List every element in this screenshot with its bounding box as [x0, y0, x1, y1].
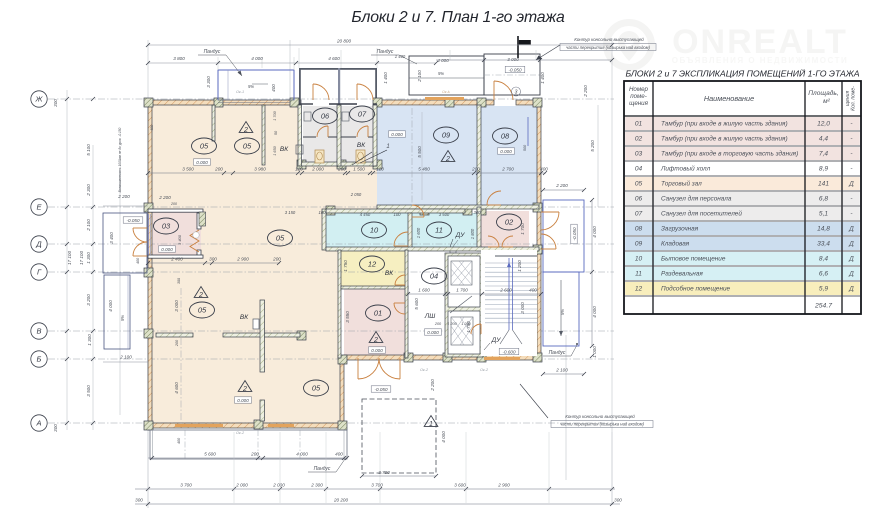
svg-text:Пандус: Пандус [204, 49, 221, 55]
svg-text:4 000: 4 000 [296, 452, 308, 457]
svg-text:2 000: 2 000 [311, 167, 324, 172]
svg-text:09: 09 [442, 131, 451, 140]
svg-text:4 000: 4 000 [441, 431, 446, 443]
svg-text:500: 500 [523, 144, 527, 151]
svg-text:2: 2 [373, 337, 378, 344]
svg-text:Площадь,: Площадь, [808, 89, 839, 97]
svg-text:08: 08 [501, 132, 510, 141]
svg-text:1 650: 1 650 [273, 145, 277, 155]
svg-text:1 000: 1 000 [592, 346, 597, 358]
svg-text:3 400: 3 400 [177, 234, 182, 245]
svg-text:4 600: 4 600 [174, 382, 179, 394]
svg-text:1 400: 1 400 [540, 72, 545, 84]
svg-text:2 200: 2 200 [117, 194, 130, 199]
svg-text:Пандус: Пандус [549, 350, 566, 356]
svg-text:Контур консольно выступающей: Контур консольно выступающей [565, 414, 635, 419]
svg-text:Д: Д [848, 226, 854, 233]
svg-text:3 700: 3 700 [371, 483, 383, 488]
svg-text:02: 02 [635, 136, 643, 143]
svg-text:04: 04 [430, 272, 438, 281]
svg-text:1: 1 [386, 144, 389, 150]
svg-text:0.000: 0.000 [161, 247, 173, 252]
svg-text:5 600: 5 600 [414, 298, 419, 310]
svg-text:Бытовое помещение: Бытовое помещение [661, 256, 726, 263]
svg-text:Номер: Номер [629, 86, 649, 93]
svg-text:01: 01 [374, 309, 382, 318]
svg-text:2 400: 2 400 [170, 257, 183, 262]
svg-text:щения: щения [629, 100, 649, 107]
svg-text:3 300: 3 300 [206, 76, 211, 88]
svg-text:1 800: 1 800 [470, 228, 475, 239]
svg-text:5 600: 5 600 [204, 452, 216, 457]
svg-text:ДУ: ДУ [455, 232, 466, 239]
svg-text:05: 05 [276, 234, 285, 243]
svg-text:1 400: 1 400 [383, 72, 388, 84]
svg-text:1 200: 1 200 [447, 322, 457, 326]
svg-text:3 550: 3 550 [345, 311, 350, 323]
svg-text:0.000: 0.000 [391, 132, 403, 137]
svg-text:2 100: 2 100 [119, 355, 132, 360]
svg-text:2: 2 [242, 386, 247, 393]
svg-text:03: 03 [635, 151, 643, 158]
svg-text:200: 200 [214, 167, 223, 172]
svg-text:11: 11 [435, 226, 443, 235]
svg-text:2 900: 2 900 [497, 483, 510, 488]
svg-text:5%: 5% [560, 309, 565, 315]
svg-text:400: 400 [177, 437, 181, 444]
svg-text:БЛОКИ 2 и 7 ЭКСПЛИКАЦИЯ ПОМ: БЛОКИ 2 и 7 ЭКСПЛИКАЦИЯ ПОМЕЩЕНИЙ 1-ГО Э… [625, 68, 859, 79]
svg-text:-: - [850, 211, 852, 218]
svg-text:3 150: 3 150 [285, 210, 296, 215]
svg-text:А: А [35, 419, 41, 428]
svg-text:07: 07 [358, 110, 367, 119]
svg-text:Лифтовый холл: Лифтовый холл [660, 165, 711, 173]
svg-text:Контур консольно выступающей: Контур консольно выступающей [574, 37, 644, 42]
svg-text:Наименование: Наименование [704, 94, 754, 103]
svg-text:Б: Б [37, 355, 42, 364]
svg-text:4,4: 4,4 [819, 136, 828, 143]
svg-text:1 300: 1 300 [86, 252, 91, 264]
svg-text:300: 300 [209, 257, 217, 262]
svg-text:1 200: 1 200 [461, 322, 471, 326]
svg-text:Санузел для посетителей: Санузел для посетителей [661, 210, 742, 218]
svg-text:0.000: 0.000 [427, 330, 439, 335]
svg-text:2 200: 2 200 [555, 183, 568, 188]
svg-text:400: 400 [271, 84, 276, 92]
svg-text:Блоки 2 и 7. План 1-го этаж: Блоки 2 и 7. План 1-го этажа [351, 9, 565, 26]
svg-text:400: 400 [150, 124, 154, 131]
svg-text:1: 1 [429, 421, 433, 428]
svg-text:04: 04 [635, 166, 643, 173]
svg-text:05: 05 [243, 142, 252, 151]
svg-text:Ж: Ж [35, 95, 44, 104]
svg-text:0.000: 0.000 [196, 160, 208, 165]
svg-text:0.000: 0.000 [371, 348, 383, 353]
svg-text:8,4: 8,4 [819, 256, 828, 263]
svg-text:33,4: 33,4 [817, 241, 830, 248]
svg-text:Возвышенность 1000мм не до уро: Возвышенность 1000мм не до уров. -0.150 [118, 127, 122, 192]
svg-text:-0.050: -0.050 [374, 387, 387, 392]
svg-text:2 000: 2 000 [272, 483, 285, 488]
svg-text:05: 05 [312, 384, 321, 393]
svg-text:3 700: 3 700 [180, 483, 192, 488]
svg-text:07: 07 [635, 211, 643, 218]
svg-text:3 000: 3 000 [520, 302, 525, 314]
svg-text:Тамбур (при входе в торговую ч: Тамбур (при входе в торговую часть здани… [661, 150, 798, 158]
svg-text:В: В [36, 327, 41, 336]
svg-text:-: - [850, 136, 852, 143]
svg-text:3 980: 3 980 [254, 167, 266, 172]
svg-text:-0.600: -0.600 [502, 349, 515, 354]
svg-text:1 300: 1 300 [87, 334, 92, 346]
svg-text:Д: Д [848, 241, 854, 248]
svg-text:-: - [850, 151, 852, 158]
svg-text:09: 09 [635, 241, 643, 248]
svg-text:Подсобное помещение: Подсобное помещение [661, 285, 731, 293]
svg-text:12,0: 12,0 [817, 121, 830, 128]
svg-text:4 000: 4 000 [251, 56, 263, 61]
svg-text:05: 05 [200, 142, 209, 151]
svg-text:02: 02 [505, 218, 514, 227]
svg-text:Ок-1: Ок-1 [236, 90, 244, 94]
svg-text:2 050: 2 050 [350, 192, 362, 197]
svg-text:10: 10 [370, 226, 379, 235]
svg-text:3 500: 3 500 [182, 167, 194, 172]
svg-text:10: 10 [635, 256, 643, 263]
svg-text:2 200: 2 200 [158, 195, 171, 200]
svg-text:2 100: 2 100 [417, 70, 422, 83]
svg-text:части перекрытия (козырька над: части перекрытия (козырька над входом) [560, 422, 644, 427]
svg-text:1 200: 1 200 [517, 260, 522, 272]
svg-text:20 800: 20 800 [336, 39, 351, 44]
svg-text:300: 300 [53, 424, 58, 432]
svg-text:5,1: 5,1 [819, 211, 828, 218]
svg-text:3: 3 [515, 90, 518, 96]
svg-text:100: 100 [394, 212, 402, 217]
svg-text:2 200: 2 200 [583, 85, 588, 98]
svg-text:05: 05 [198, 306, 207, 315]
svg-text:4 000: 4 000 [592, 226, 597, 238]
svg-text:части перекрытия (козырька над: части перекрытия (козырька над входом) [566, 45, 650, 50]
svg-text:Тамбур (при входе в жилую част: Тамбур (при входе в жилую часть здания) [661, 120, 788, 128]
svg-text:4 000: 4 000 [437, 58, 449, 63]
svg-text:Торговый зал: Торговый зал [661, 180, 702, 188]
svg-text:4 000: 4 000 [108, 300, 113, 312]
svg-text:17 100: 17 100 [79, 251, 84, 265]
svg-text:ВК: ВК [385, 270, 394, 277]
svg-text:5%: 5% [248, 84, 254, 89]
svg-text:4 600: 4 600 [328, 56, 340, 61]
svg-text:3 600: 3 600 [454, 483, 466, 488]
svg-text:2 200: 2 200 [430, 379, 435, 392]
svg-text:ДУ: ДУ [491, 337, 502, 344]
svg-text:-0.050: -0.050 [508, 67, 521, 72]
svg-text:12: 12 [368, 260, 377, 269]
svg-text:06: 06 [635, 196, 643, 203]
svg-text:щения: щения [845, 91, 851, 107]
svg-text:200: 200 [175, 339, 179, 347]
svg-text:1 500: 1 500 [353, 167, 365, 172]
svg-text:2: 2 [198, 292, 203, 299]
svg-text:100: 100 [319, 210, 327, 215]
svg-text:17 100: 17 100 [67, 251, 72, 265]
svg-text:300: 300 [53, 99, 58, 107]
svg-text:3 700: 3 700 [378, 470, 390, 475]
svg-text:2 300: 2 300 [310, 483, 323, 488]
svg-text:Пандус: Пандус [314, 466, 331, 472]
svg-text:1 700: 1 700 [456, 288, 468, 293]
svg-text:Санузел для персонала: Санузел для персонала [661, 195, 732, 203]
svg-text:ВК: ВК [280, 146, 289, 153]
svg-text:3 200: 3 200 [86, 294, 91, 306]
svg-text:200: 200 [170, 202, 177, 206]
svg-text:5,9: 5,9 [819, 286, 828, 293]
svg-text:-: - [850, 121, 852, 128]
svg-text:5 200: 5 200 [590, 140, 595, 152]
svg-text:2 600: 2 600 [499, 288, 512, 293]
svg-text:2: 2 [445, 156, 450, 163]
svg-text:400: 400 [136, 257, 140, 264]
svg-text:3 500: 3 500 [86, 385, 91, 397]
svg-text:5 100: 5 100 [86, 144, 91, 156]
svg-text:8,9: 8,9 [819, 166, 828, 173]
svg-text:5 500: 5 500 [417, 146, 422, 158]
svg-text:0.000: 0.000 [237, 398, 249, 403]
svg-text:200: 200 [434, 322, 442, 326]
svg-text:3 000: 3 000 [174, 300, 179, 312]
svg-text:6,8: 6,8 [819, 196, 828, 203]
svg-text:ЛШ: ЛШ [424, 313, 435, 320]
svg-text:05: 05 [635, 181, 643, 188]
svg-text:1 600: 1 600 [416, 227, 421, 238]
svg-text:1 750: 1 750 [343, 260, 348, 272]
svg-text:300: 300 [614, 498, 622, 503]
svg-text:400: 400 [529, 288, 537, 293]
svg-text:12: 12 [635, 286, 643, 293]
svg-text:2 100: 2 100 [555, 368, 568, 373]
svg-text:200: 200 [337, 167, 346, 172]
svg-text:2 700: 2 700 [501, 167, 514, 172]
svg-text:-0.050: -0.050 [572, 227, 577, 240]
svg-text:300: 300 [135, 498, 143, 503]
svg-text:2 900: 2 900 [236, 257, 249, 262]
svg-text:-: - [850, 196, 852, 203]
svg-text:06: 06 [321, 112, 330, 121]
svg-text:200: 200 [272, 257, 281, 262]
svg-text:-0.050: -0.050 [126, 218, 139, 223]
svg-text:м²: м² [823, 98, 831, 105]
svg-text:ВК: ВК [357, 142, 366, 149]
svg-text:03: 03 [162, 222, 171, 231]
svg-text:141: 141 [818, 181, 829, 188]
svg-text:120: 120 [376, 167, 384, 172]
svg-text:ОБЪЯВЛЕНИЯ О НЕДВИЖИМОСТИ: ОБЪЯВЛЕНИЯ О НЕДВИЖИМОСТИ [672, 56, 848, 65]
svg-text:200: 200 [471, 167, 480, 172]
svg-text:11: 11 [635, 271, 642, 278]
svg-text:1 600: 1 600 [418, 288, 430, 293]
svg-text:Кол. поме-: Кол. поме- [851, 86, 857, 111]
svg-text:5 480: 5 480 [418, 167, 430, 172]
svg-text:Д: Д [848, 181, 854, 188]
svg-text:01: 01 [635, 121, 643, 128]
svg-text:Д: Д [848, 256, 854, 263]
svg-text:Загрузочная: Загрузочная [661, 226, 699, 233]
svg-text:3 400: 3 400 [109, 232, 114, 244]
svg-text:Ок-Ь: Ок-Ь [442, 90, 451, 94]
svg-text:ВК: ВК [240, 314, 249, 321]
svg-text:Ок-2: Ок-2 [480, 368, 489, 372]
svg-text:120: 120 [295, 167, 303, 172]
svg-text:300: 300 [177, 278, 181, 284]
svg-text:300: 300 [474, 210, 482, 215]
svg-text:5%: 5% [120, 315, 125, 321]
svg-text:400: 400 [540, 167, 548, 172]
svg-text:6,6: 6,6 [819, 271, 828, 278]
svg-text:3 500: 3 500 [439, 212, 450, 217]
svg-text:20 200: 20 200 [333, 498, 348, 503]
svg-text:2 300: 2 300 [86, 184, 91, 197]
svg-text:Раздевальная: Раздевальная [661, 270, 703, 278]
svg-text:Д: Д [848, 271, 854, 278]
svg-text:4 450: 4 450 [360, 212, 371, 217]
svg-text:0.000: 0.000 [500, 149, 512, 154]
svg-text:Тамбур (при входе в жилую част: Тамбур (при входе в жилую часть здания) [661, 135, 788, 143]
svg-text:Д: Д [848, 286, 854, 293]
svg-text:5%: 5% [438, 71, 444, 76]
svg-text:поме-: поме- [630, 93, 647, 100]
svg-text:Ок-2: Ок-2 [420, 368, 429, 372]
svg-text:200: 200 [250, 452, 259, 457]
svg-text:4 000: 4 000 [592, 306, 597, 318]
svg-text:Пандус: Пандус [377, 49, 394, 55]
svg-text:08: 08 [635, 226, 643, 233]
svg-text:Ок-2: Ок-2 [236, 431, 245, 435]
svg-text:2 000: 2 000 [235, 483, 248, 488]
svg-text:14,8: 14,8 [817, 226, 830, 233]
svg-text:2 100: 2 100 [86, 219, 91, 232]
svg-text:7,4: 7,4 [819, 151, 828, 158]
svg-text:Д: Д [35, 240, 42, 249]
svg-text:Кладовая: Кладовая [661, 240, 690, 248]
svg-text:254.7: 254.7 [814, 303, 832, 310]
svg-text:-: - [850, 166, 852, 173]
svg-text:2: 2 [243, 127, 248, 134]
svg-text:400: 400 [335, 452, 343, 457]
svg-text:3 800: 3 800 [173, 56, 185, 61]
svg-text:1 700: 1 700 [273, 110, 277, 120]
